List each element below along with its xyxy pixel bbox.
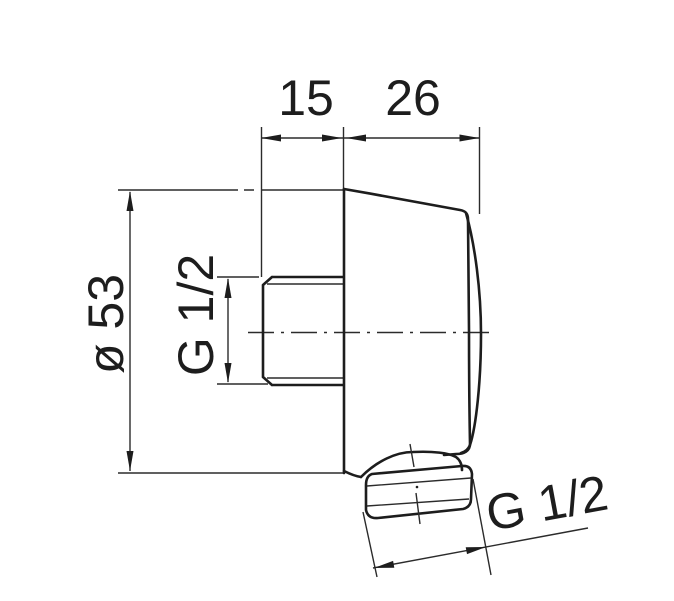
arrowhead-left-icon bbox=[261, 135, 281, 142]
dimension-label-26: 26 bbox=[385, 70, 441, 126]
arrowhead-up-icon bbox=[225, 278, 232, 298]
body-bottom-left-edge bbox=[344, 471, 361, 477]
body-top-and-front-edge bbox=[344, 189, 470, 455]
stub-thread-root-lines bbox=[367, 478, 471, 506]
dimension-label-diameter: ø 53 bbox=[78, 274, 134, 374]
arrowhead-left-icon bbox=[374, 561, 394, 568]
technical-drawing-page: 15 26 ø 53 G 1/2 bbox=[0, 0, 674, 601]
stub-outline bbox=[366, 466, 472, 518]
arrowhead-down-icon bbox=[127, 451, 134, 471]
shower-elbow-technical-drawing: 15 26 ø 53 G 1/2 bbox=[0, 0, 674, 601]
stub-axis-centerline bbox=[410, 444, 420, 524]
arrowhead-right-icon bbox=[460, 135, 480, 142]
dimension-label-15: 15 bbox=[278, 70, 334, 126]
dimension-label-wall-thread: G 1/2 bbox=[168, 254, 224, 376]
arrowhead-mid-left-icon bbox=[346, 135, 366, 142]
extension-lines-wall-thread bbox=[217, 277, 268, 384]
arrowhead-right-icon bbox=[466, 547, 486, 554]
stub-center-mark bbox=[416, 486, 419, 489]
nipple-outline bbox=[263, 277, 343, 385]
wall-nipple-thread bbox=[263, 277, 343, 385]
arrowhead-mid-right-icon bbox=[322, 135, 342, 142]
dimension-label-outlet-thread: G 1/2 bbox=[482, 465, 612, 542]
dimension-outlet-thread: G 1/2 bbox=[363, 465, 612, 577]
arrowhead-down-icon bbox=[225, 363, 232, 383]
arrowhead-up-icon bbox=[127, 191, 134, 211]
dimension-top-widths: 15 26 bbox=[261, 70, 480, 277]
nipple-thread-root-lines bbox=[267, 284, 343, 378]
dimension-wall-thread: G 1/2 bbox=[168, 254, 268, 384]
